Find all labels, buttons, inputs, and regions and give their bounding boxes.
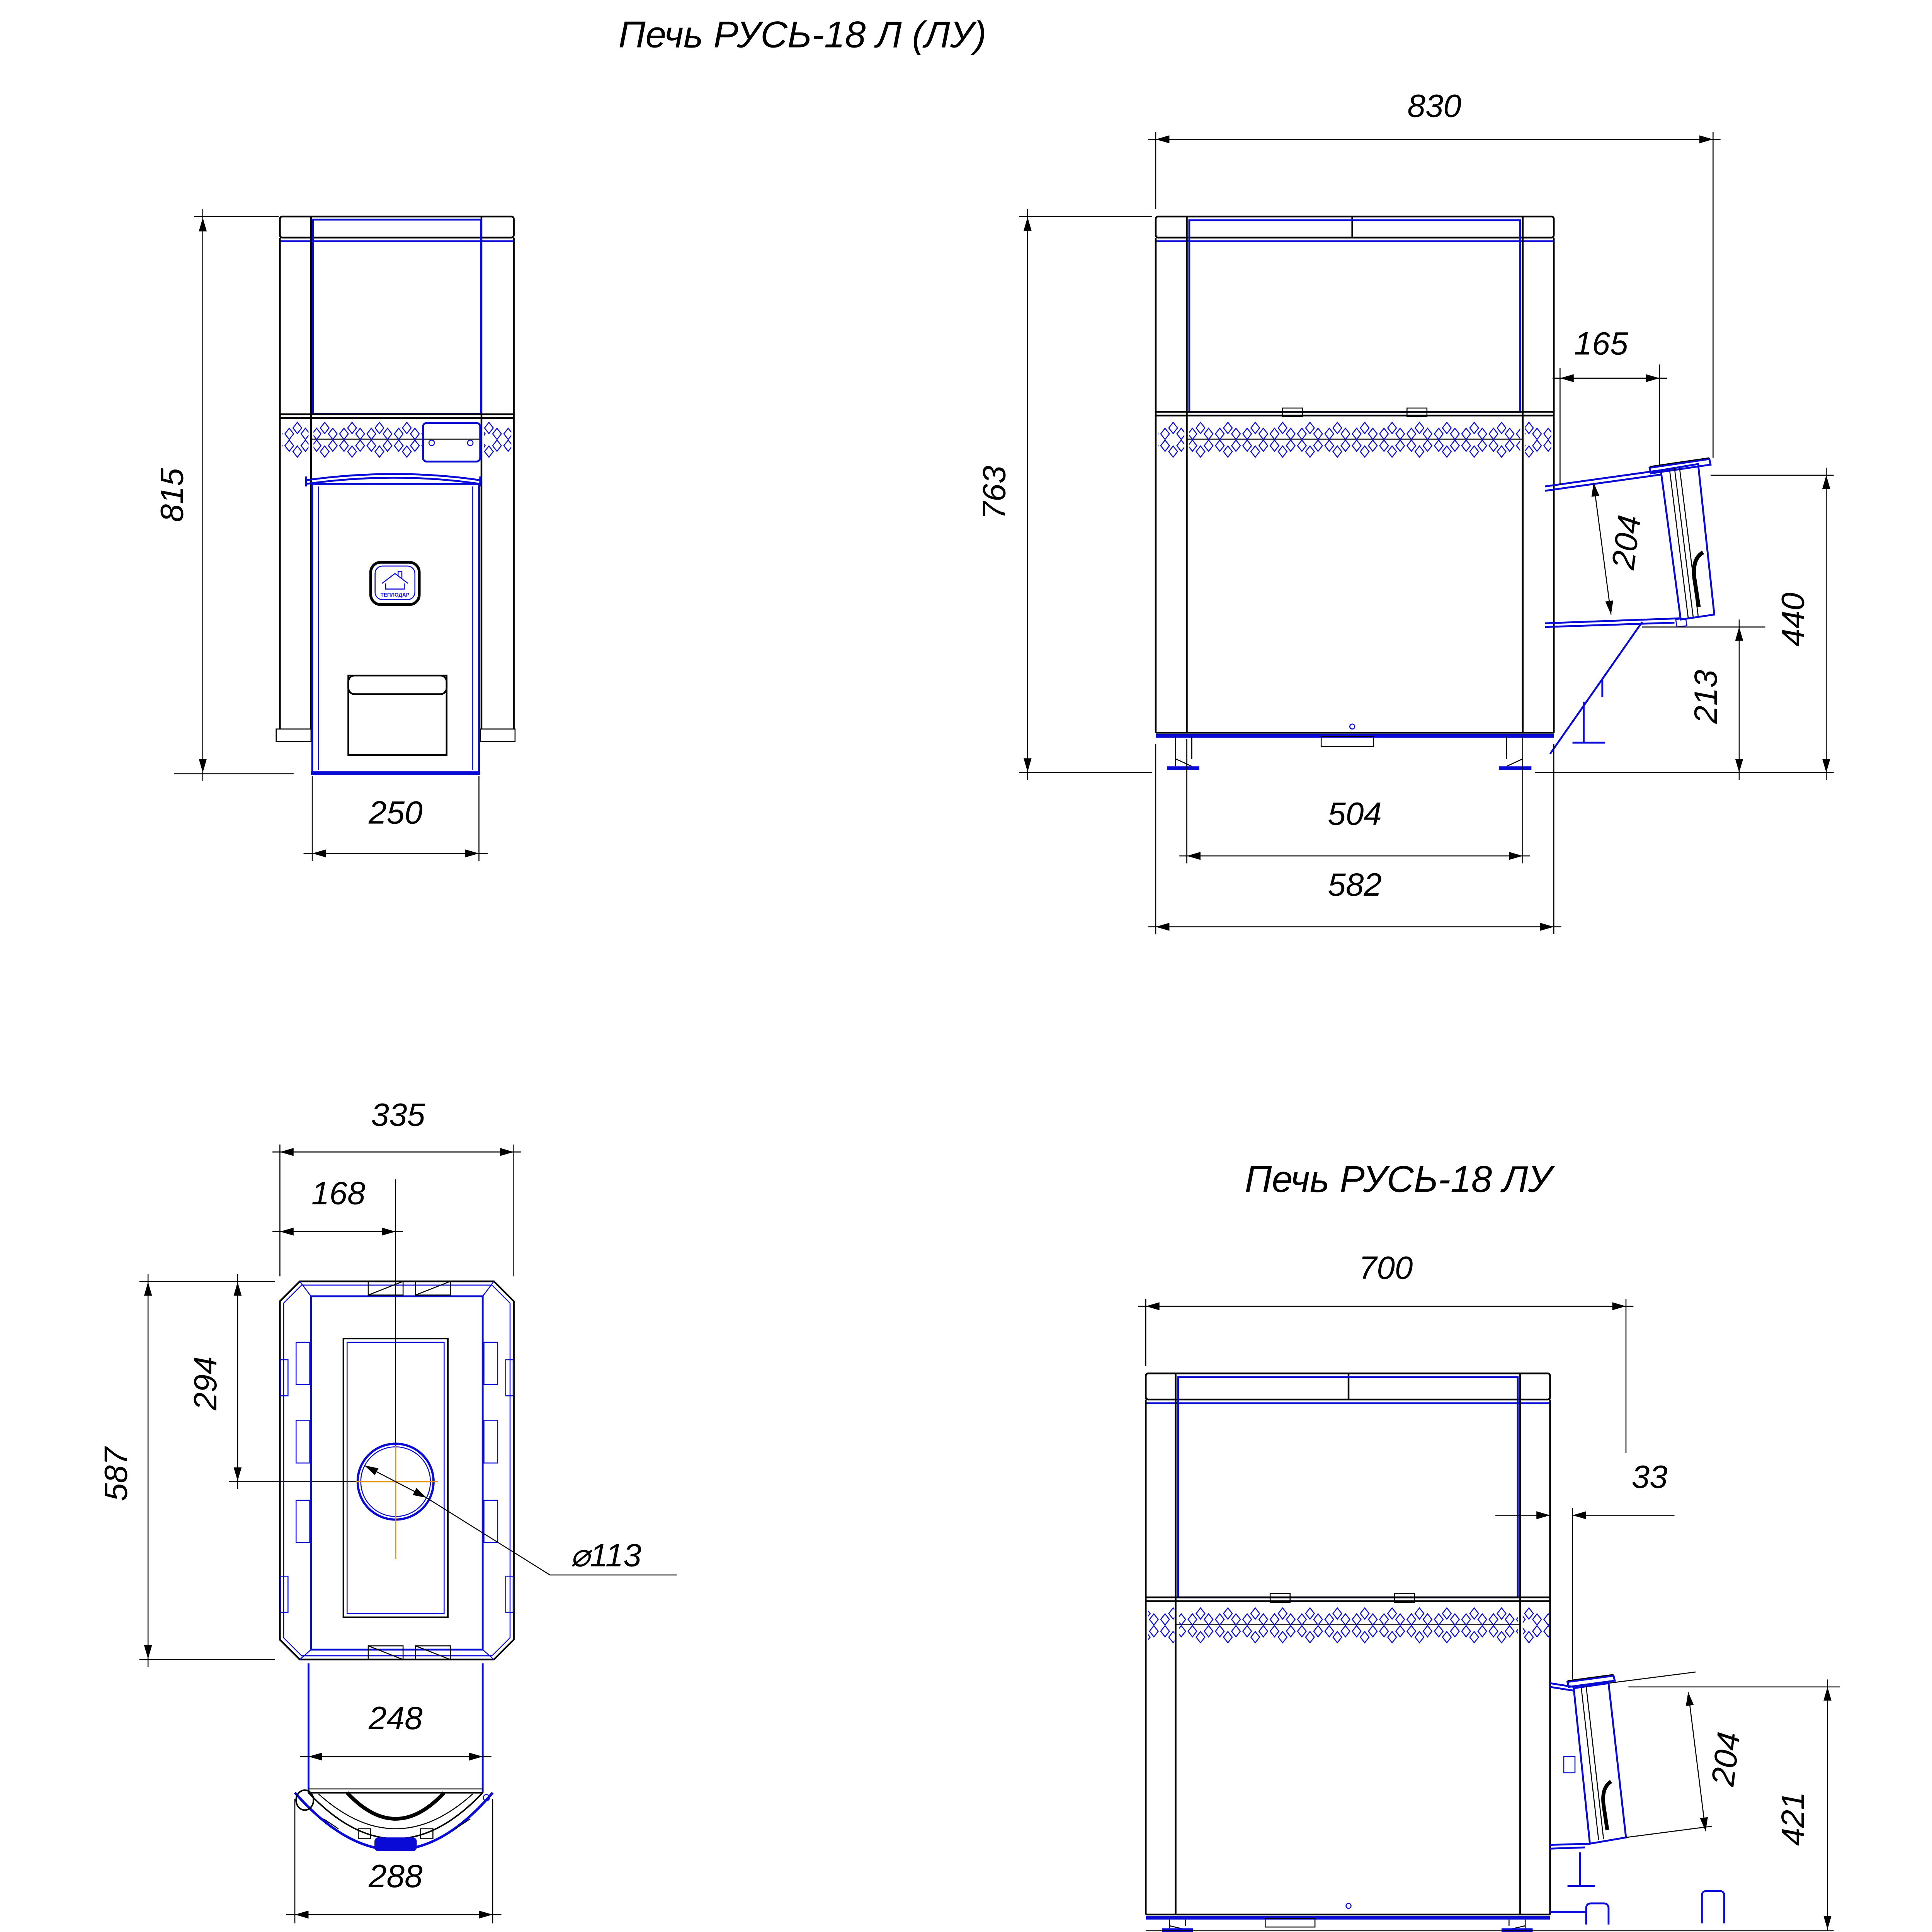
dim-side-base-inner: 504 [1179,739,1530,863]
svg-text:335: 335 [371,1097,425,1133]
centerlines [229,1179,415,1488]
side-view-long: 830 763 165 204 440 [976,88,1833,934]
dim-side-door-offset: 165 [1553,325,1667,485]
front-band-plate [423,423,480,462]
svg-text:504: 504 [1328,796,1382,832]
svg-text:294: 294 [187,1356,223,1411]
svg-text:421: 421 [1774,1792,1811,1846]
svg-text:33: 33 [1632,1459,1668,1495]
svg-text:288: 288 [368,1858,423,1894]
side-view-short: 700 33 204 421 [1138,1250,1840,1931]
svg-text:204: 204 [1704,1730,1747,1788]
front-door [312,484,479,772]
door-handle [1694,552,1703,607]
dim-top-width: 335 [272,1097,521,1277]
svg-text:165: 165 [1574,325,1628,362]
svg-text:248: 248 [368,1700,423,1736]
svg-text:815: 815 [153,468,190,522]
lu-fuel-door [1550,1675,1725,1925]
lu-door-handle [1603,1781,1611,1830]
side-band-pattern [1189,419,1520,460]
svg-text:700: 700 [1359,1250,1413,1286]
dim-side-door-face: 204 [1590,482,1648,615]
dim-side-base-outer: 582 [1148,744,1561,934]
lu-tank [1178,1377,1518,1597]
brand-badge: ТЕПЛОДАР [371,562,419,604]
dim-lu-width: 700 [1138,1250,1633,1453]
hinge-pin [296,1790,313,1810]
front-band-pattern [313,419,422,460]
dim-flue-center: 294 [187,1274,241,1489]
svg-text:204: 204 [1604,513,1648,572]
svg-text:582: 582 [1328,866,1382,903]
dim-front-height: 815 [153,209,294,781]
dim-lu-door-face: 204 [1609,1672,1747,1837]
dim-lu-door-height: 421 [1628,1679,1840,1930]
dim-top-depth: 587 [97,1274,275,1667]
lu-legs [1169,1920,1525,1930]
title-main: Печь РУСЬ-18 Л (ЛУ) [619,14,986,55]
svg-text:587: 587 [97,1446,134,1501]
front-drawer-handle [348,675,446,694]
front-tank [313,219,481,413]
lu-band-left-cluster [1148,1605,1175,1646]
dim-side-width: 830 [1148,88,1721,458]
door-latch [374,1837,417,1851]
drawing-sheet: Печь РУСЬ-18 Л (ЛУ) Печь РУСЬ-18 ЛУ ТЕПЛ… [0,0,1932,1932]
side-legs [1175,736,1522,766]
svg-text:213: 213 [1687,670,1724,724]
dim-flue-offset: 168 [272,1175,403,1236]
svg-text:250: 250 [368,794,423,830]
dim-top-door-width: 248 [300,1700,492,1760]
svg-text:763: 763 [976,466,1012,520]
svg-text:830: 830 [1407,88,1461,124]
house-icon [382,571,408,589]
dim-side-door-bottom: 213 [1642,619,1765,780]
lu-band-right-cluster [1523,1605,1549,1646]
top-side-slots [281,1342,513,1612]
side-band-left-cluster [1158,419,1184,460]
lu-band-pattern [1179,1605,1518,1646]
front-ash-drawer [348,675,446,755]
top-inner-wall [311,1296,483,1650]
dim-side-height: 763 [976,209,1152,780]
front-view: ТЕПЛОДАР 815 250 [153,209,515,861]
dim-flue-diameter: ⌀113 [363,1462,677,1575]
flue-centermark [356,1446,438,1559]
svg-text:⌀113: ⌀113 [570,1537,641,1573]
side-door-strut [1550,622,1642,754]
title-variant: Печь РУСЬ-18 ЛУ [1245,1158,1555,1200]
brand-text: ТЕПЛОДАР [381,592,410,598]
side-band-right-cluster [1525,419,1551,460]
dim-front-door-width: 250 [304,776,488,861]
top-door-arch [295,1789,493,1851]
svg-text:168: 168 [311,1175,366,1211]
svg-text:440: 440 [1774,593,1811,647]
dim-side-door-top: 440 [1535,468,1834,780]
front-band-right-cluster [484,419,511,460]
drawing-canvas: Печь РУСЬ-18 Л (ЛУ) Печь РУСЬ-18 ЛУ ТЕПЛ… [0,0,1932,1932]
front-left-foot [276,729,311,742]
side-tank [1189,220,1520,412]
front-band-left-cluster [282,419,309,460]
top-view: ⌀113 335 168 587 294 [97,1097,677,1923]
lu-door-supports [1550,1852,1725,1925]
front-right-foot [480,729,515,742]
dim-lu-door-offset: 33 [1495,1459,1675,1680]
